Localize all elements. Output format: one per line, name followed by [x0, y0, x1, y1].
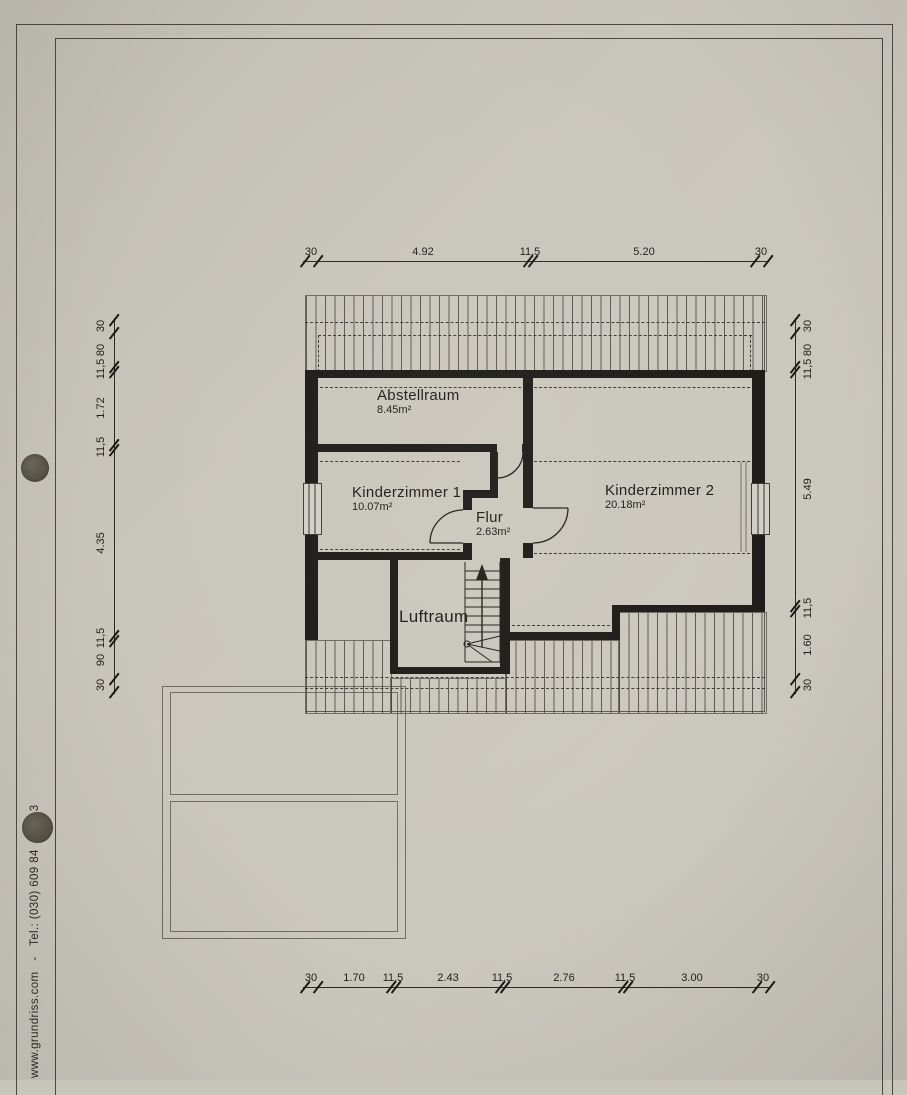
scanned-floor-plan-sheet: www.grundriss.com - Tel.: (030) 609 843: [0, 0, 907, 1080]
window-glazing-right: [758, 484, 764, 534]
door-abstellraum: [497, 452, 523, 478]
window-glazing-left: [309, 484, 315, 534]
door-kinderzimmer-1: [430, 510, 463, 543]
plan-symbols-overlay: [0, 0, 907, 1080]
punch-hole-top: [21, 454, 49, 482]
punch-hole-bottom: [22, 812, 53, 843]
stair-direction-arrow-icon: [476, 564, 488, 647]
door-kinderzimmer-2: [533, 508, 568, 543]
wall-layer-lines: [741, 462, 746, 552]
